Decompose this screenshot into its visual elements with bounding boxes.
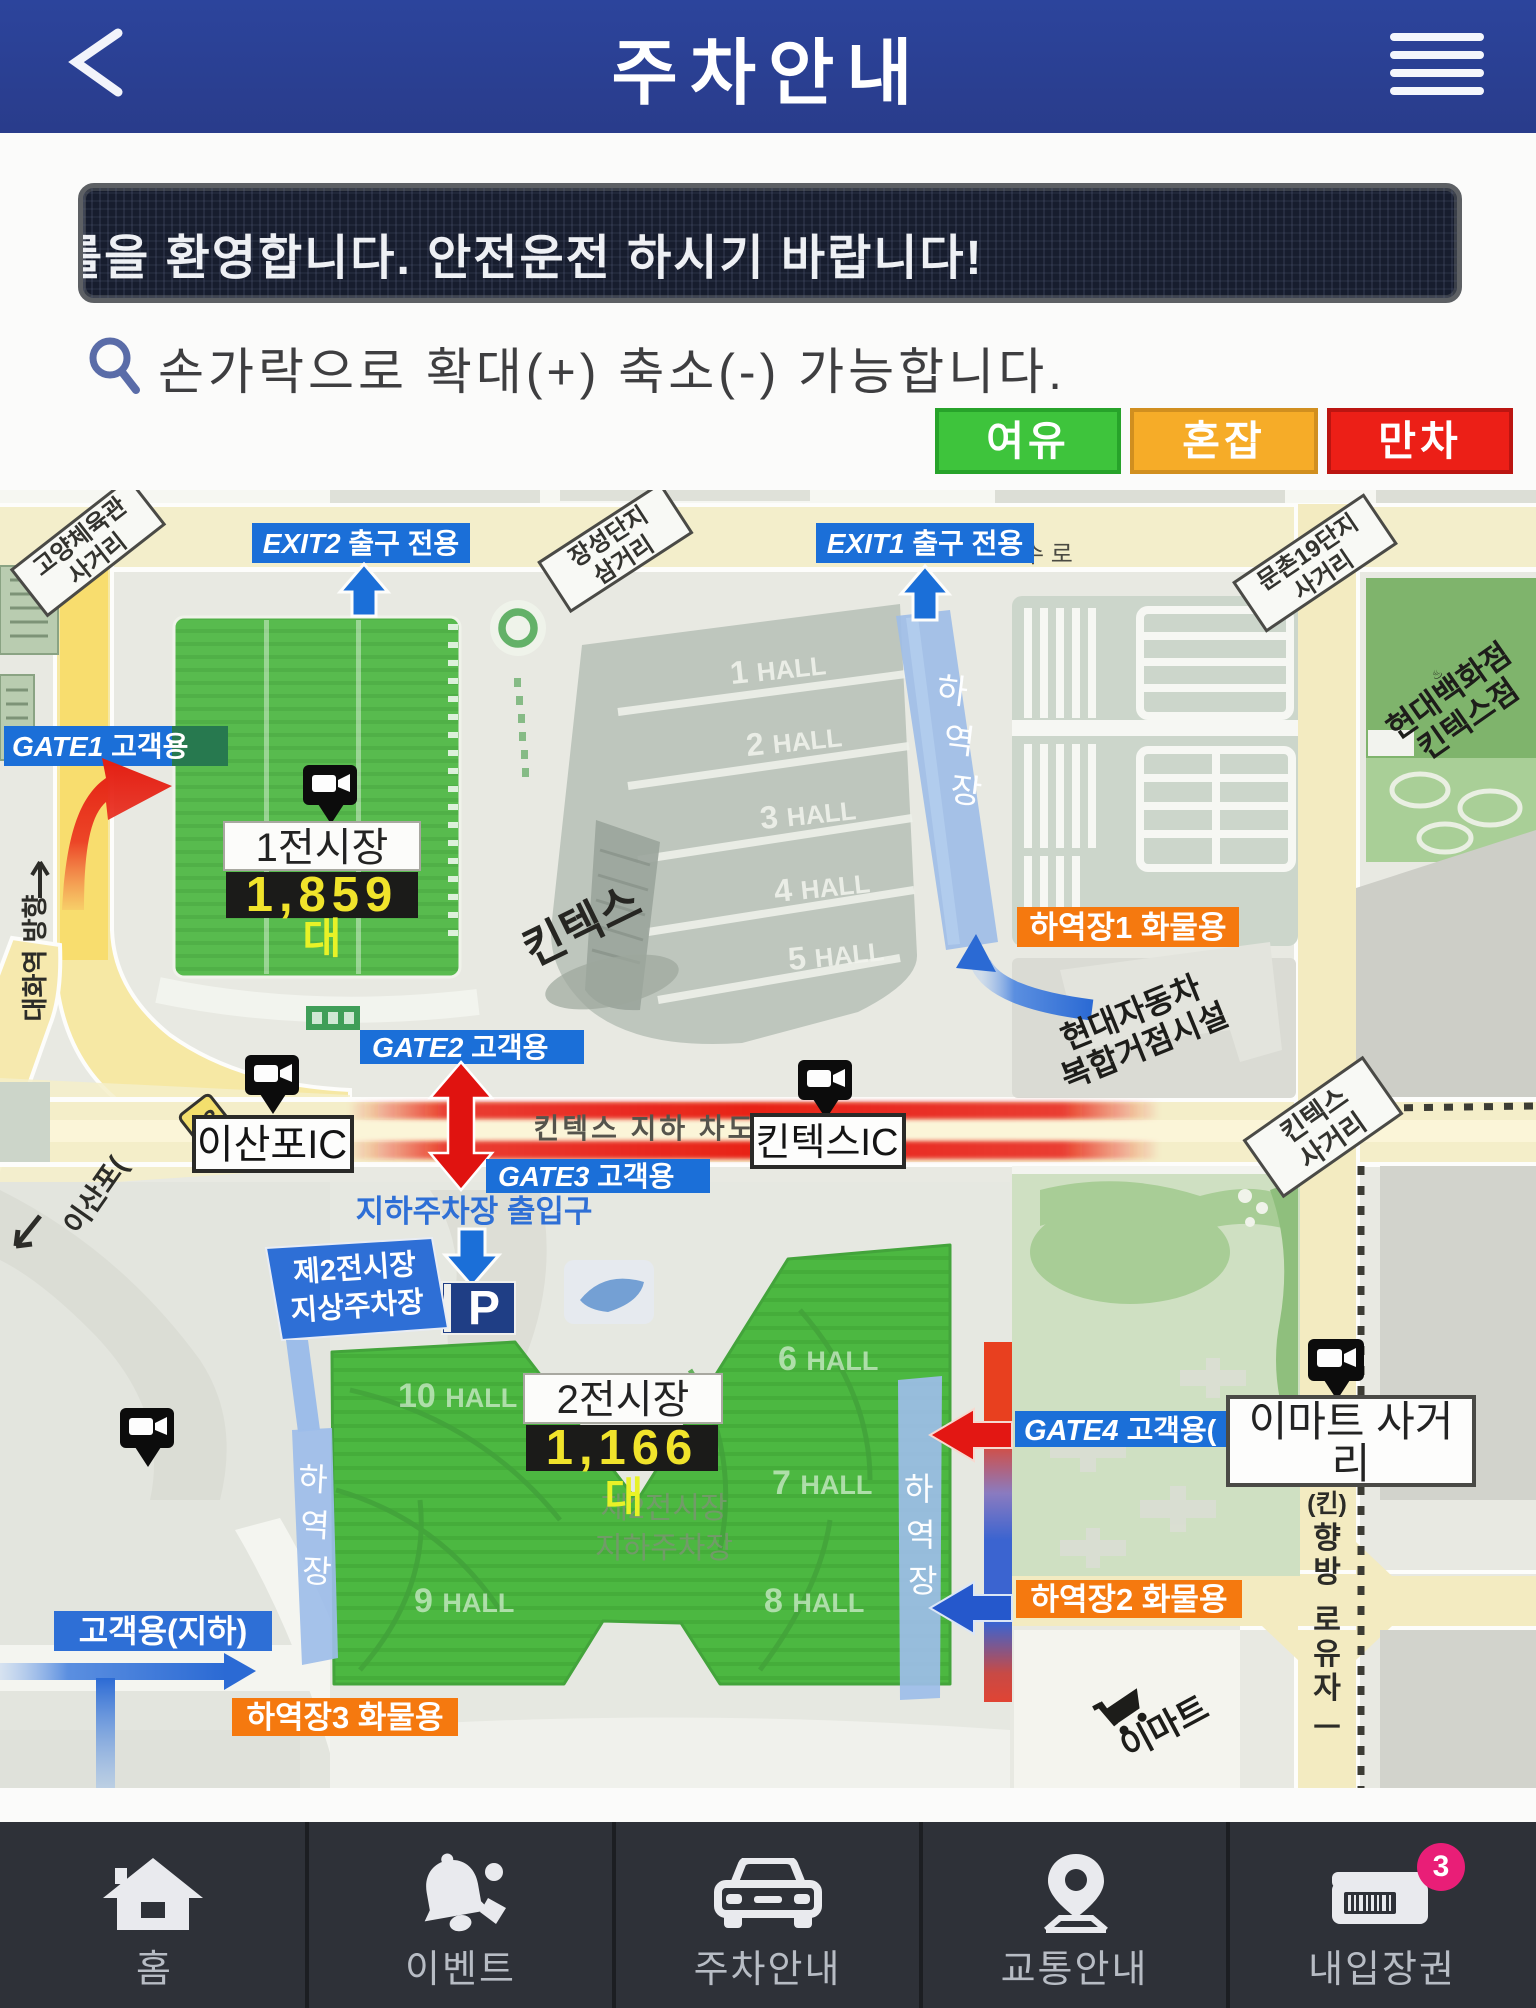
svg-text:(킨): (킨)	[1307, 1490, 1347, 1518]
svg-text:ㅡ: ㅡ	[1313, 1712, 1341, 1745]
svg-text:GATE2 고객용: GATE2 고객용	[372, 1032, 548, 1063]
svg-text:2전시장: 2전시장	[557, 1378, 690, 1422]
svg-text:역: 역	[299, 1507, 330, 1544]
svg-text:리: 리	[1332, 1440, 1371, 1487]
svg-text:장: 장	[948, 771, 984, 813]
svg-text:7 HALL: 7 HALL	[772, 1464, 872, 1502]
svg-text:로: 로	[1313, 1604, 1341, 1637]
svg-text:GATE4 고객용(: GATE4 고객용(	[1024, 1414, 1217, 1447]
svg-text:장: 장	[301, 1553, 332, 1590]
svg-text:EXIT1 출구 전용: EXIT1 출구 전용	[827, 528, 1023, 559]
svg-text:자: 자	[1313, 1672, 1341, 1705]
svg-text:GATE1 고객용: GATE1 고객용	[12, 731, 188, 762]
svg-text:10 HALL: 10 HALL	[398, 1377, 517, 1415]
svg-text:하: 하	[904, 1471, 933, 1507]
svg-text:지하주차장 출입구: 지하주차장 출입구	[356, 1194, 593, 1229]
svg-text:이마트 사거: 이마트 사거	[1249, 1398, 1454, 1445]
svg-text:킨텍스IC: 킨텍스IC	[756, 1122, 899, 1164]
svg-text:장: 장	[908, 1563, 937, 1599]
svg-text:하: 하	[297, 1461, 328, 1498]
svg-text:1전시장: 1전시장	[256, 826, 389, 870]
svg-text:대: 대	[605, 1474, 644, 1521]
svg-text:대화역 방향: 대화역 방향	[20, 895, 50, 1022]
svg-text:이산포IC: 이산포IC	[197, 1123, 347, 1167]
svg-text:하역장1 화물용: 하역장1 화물용	[1030, 910, 1227, 945]
svg-text:지하주차장: 지하주차장	[595, 1532, 733, 1565]
svg-text:1,166: 1,166	[546, 1421, 699, 1475]
svg-text:향: 향	[1313, 1522, 1341, 1555]
svg-text:하역장2 화물용: 하역장2 화물용	[1031, 1582, 1228, 1617]
svg-text:킨텍스 지하 차도: 킨텍스 지하 차도	[534, 1113, 757, 1144]
svg-text:9 HALL: 9 HALL	[414, 1582, 514, 1620]
svg-text:하역장3 화물용: 하역장3 화물용	[247, 1700, 444, 1735]
svg-text:방: 방	[1313, 1556, 1341, 1589]
svg-text:1,859: 1,859	[246, 868, 399, 922]
svg-text:하: 하	[934, 671, 970, 713]
svg-text:역: 역	[906, 1517, 935, 1553]
svg-text:GATE3 고객용: GATE3 고객용	[498, 1161, 674, 1192]
svg-text:역: 역	[941, 721, 977, 763]
svg-text:P: P	[468, 1282, 500, 1335]
svg-text:EXIT2 출구 전용: EXIT2 출구 전용	[263, 528, 459, 559]
svg-text:8 HALL: 8 HALL	[764, 1582, 864, 1620]
svg-text:대: 대	[303, 915, 342, 962]
svg-text:6 HALL: 6 HALL	[778, 1340, 878, 1378]
svg-text:고객용(지하): 고객용(지하)	[79, 1613, 248, 1649]
svg-text:유: 유	[1313, 1638, 1341, 1671]
